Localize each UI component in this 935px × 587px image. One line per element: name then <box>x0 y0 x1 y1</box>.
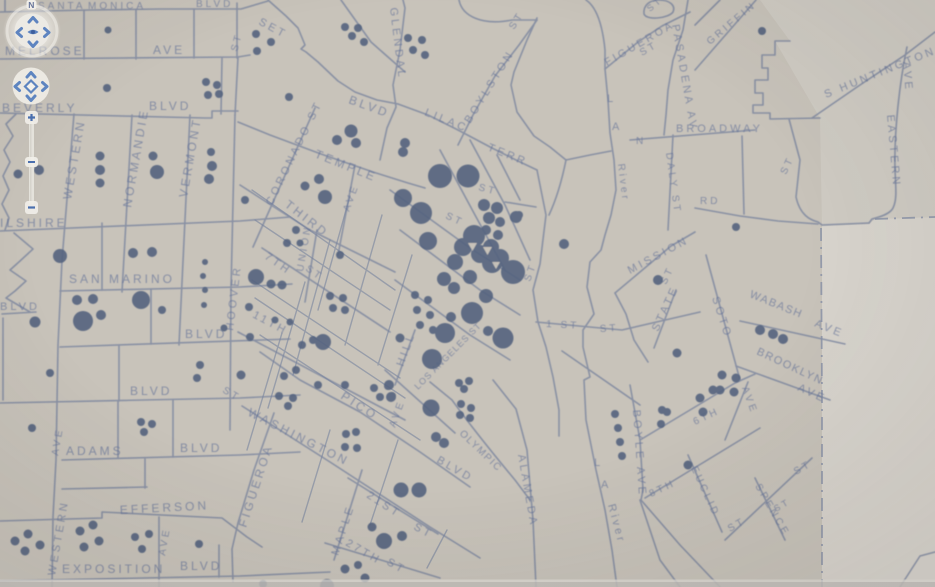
svg-text:N: N <box>28 0 34 10</box>
